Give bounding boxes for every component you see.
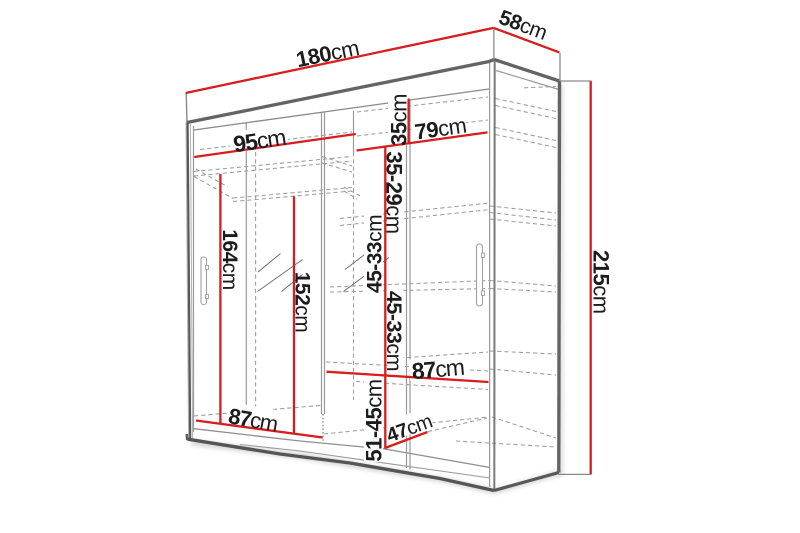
svg-text:215cm: 215cm bbox=[589, 250, 614, 314]
svg-text:45-33cm: 45-33cm bbox=[382, 291, 406, 371]
svg-text:87cm: 87cm bbox=[411, 354, 465, 384]
svg-text:152cm: 152cm bbox=[290, 272, 313, 333]
svg-text:45-33cm: 45-33cm bbox=[363, 215, 386, 293]
svg-text:35cm: 35cm bbox=[386, 94, 411, 146]
svg-text:51-45cm: 51-45cm bbox=[362, 379, 387, 461]
svg-text:164cm: 164cm bbox=[218, 229, 241, 290]
